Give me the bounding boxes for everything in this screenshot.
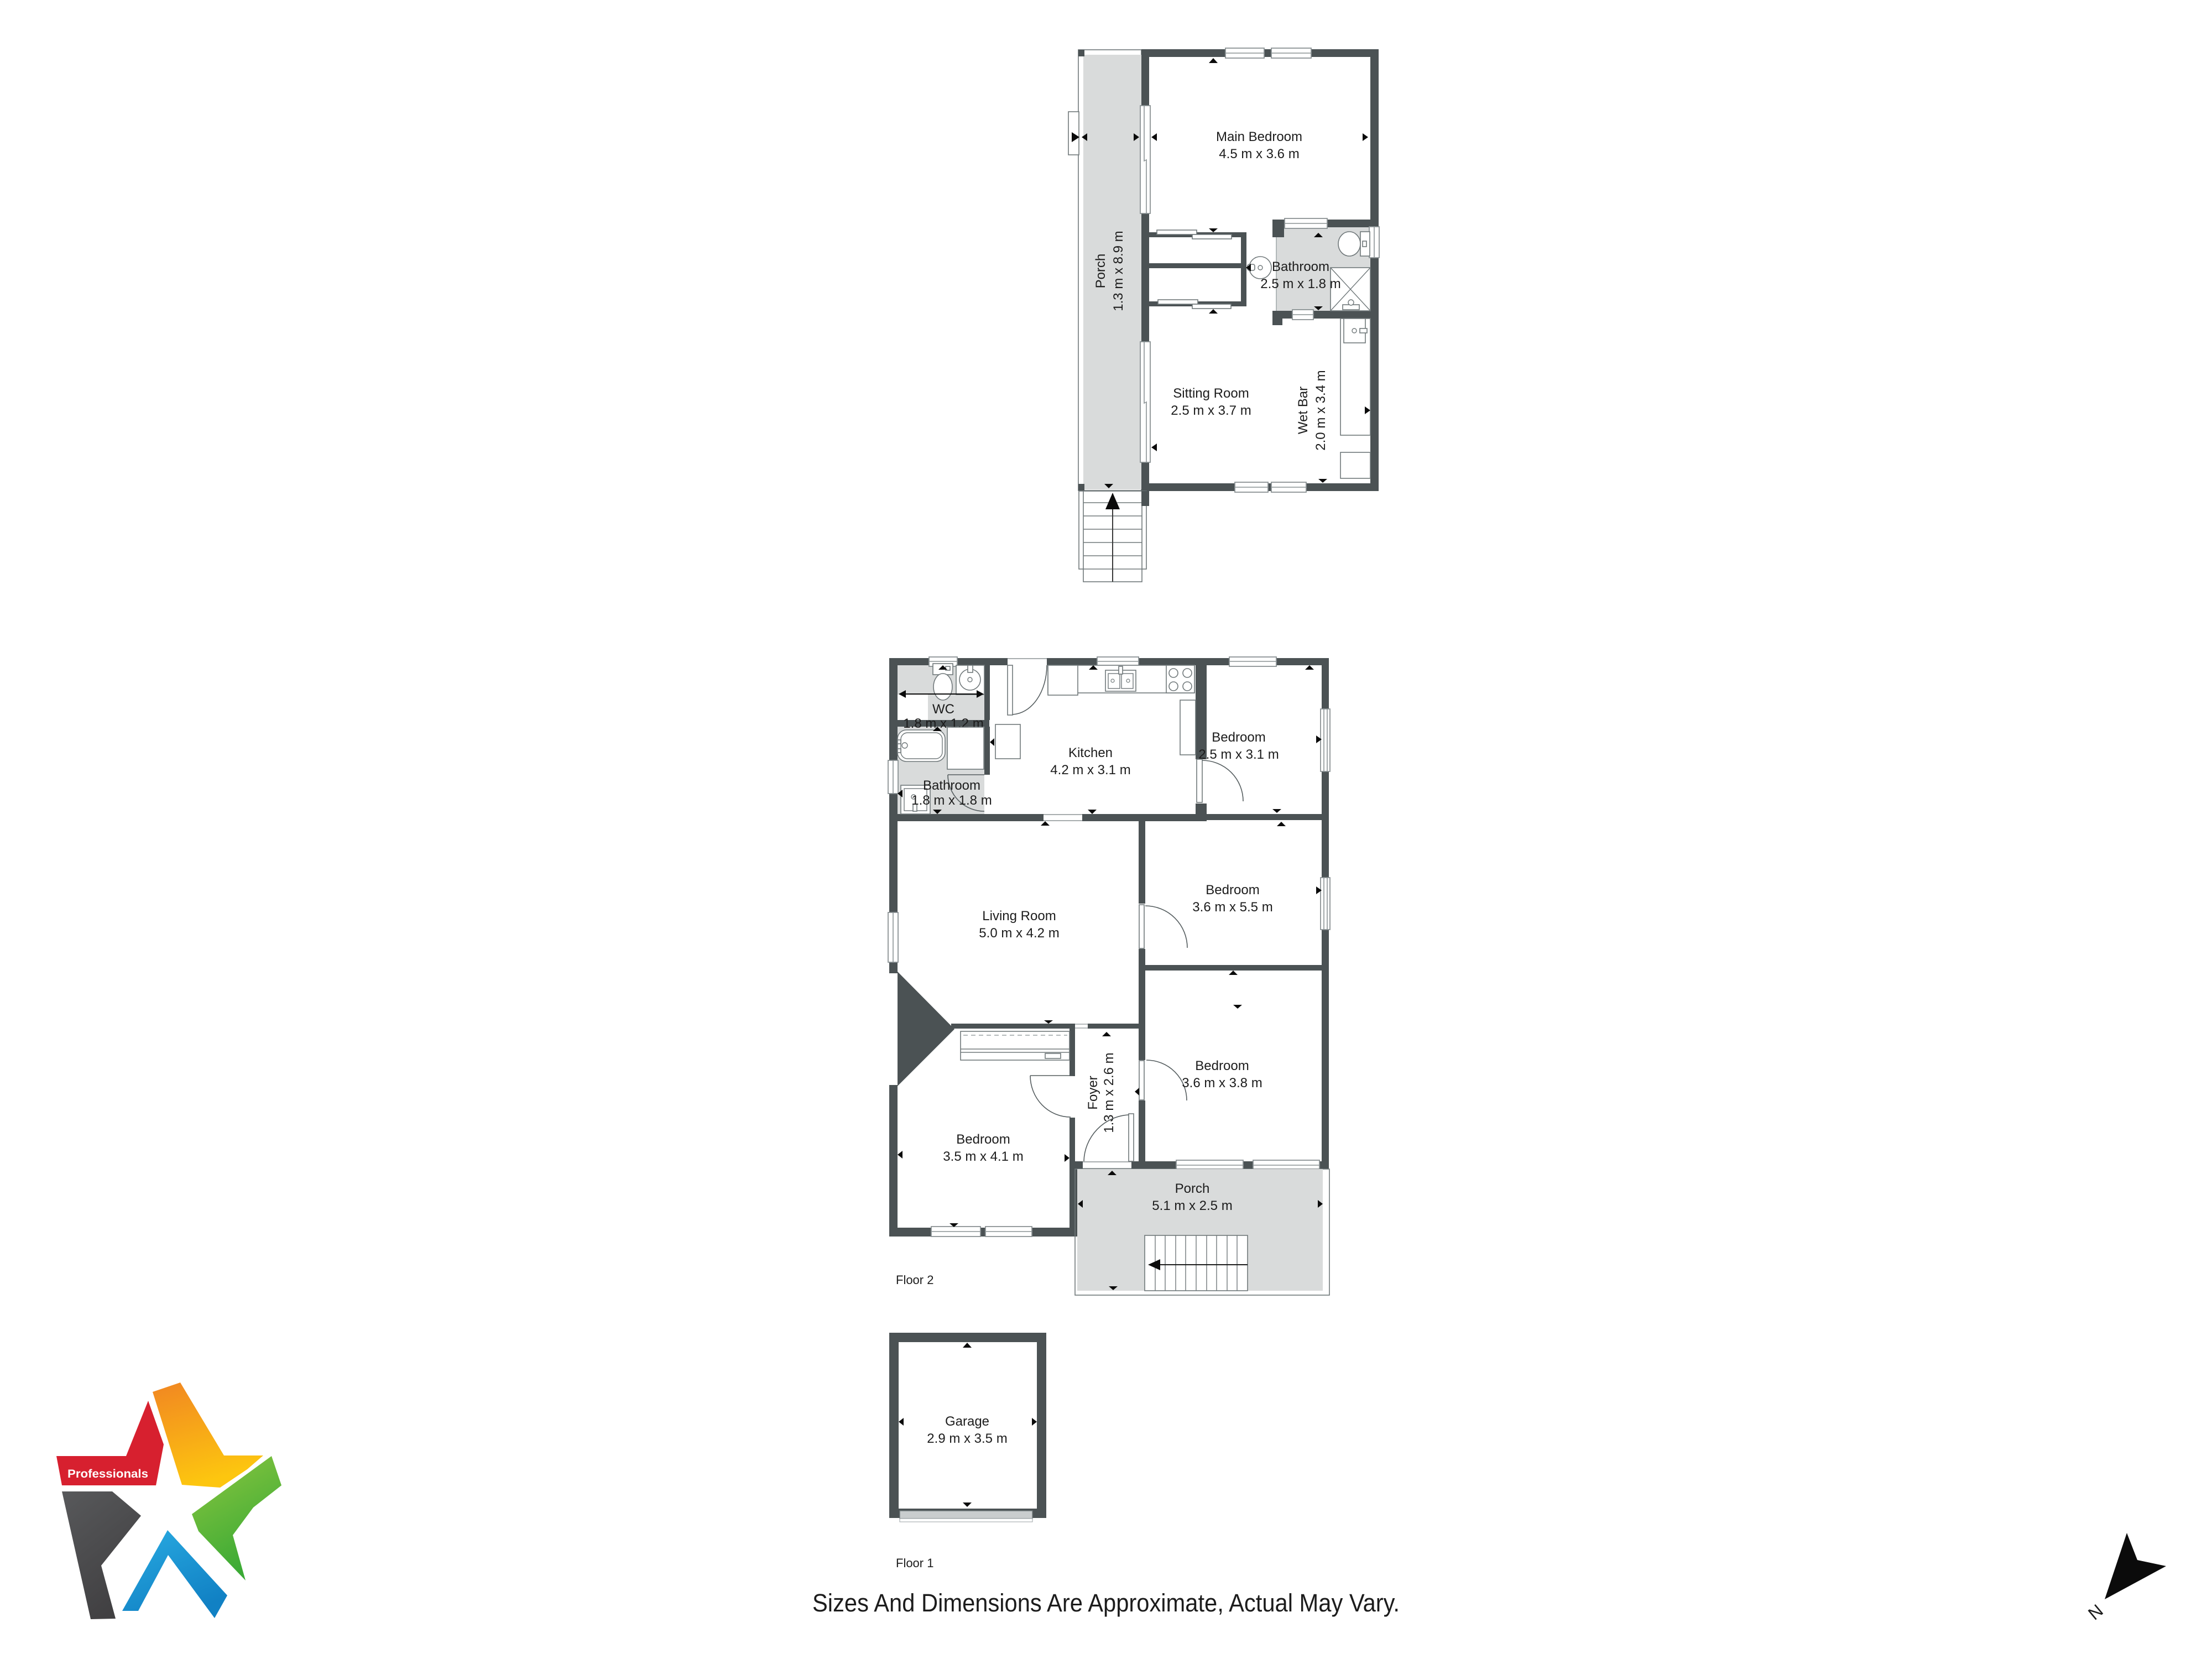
svg-text:3.6 m x 3.8 m: 3.6 m x 3.8 m bbox=[1182, 1076, 1262, 1091]
svg-text:Sizes And Dimensions Are Appro: Sizes And Dimensions Are Approximate, Ac… bbox=[812, 1589, 1400, 1617]
svg-text:4.5 m x 3.6 m: 4.5 m x 3.6 m bbox=[1219, 147, 1299, 161]
svg-text:Living Room: Living Room bbox=[982, 909, 1056, 924]
svg-text:5.0 m x 4.2 m: 5.0 m x 4.2 m bbox=[979, 926, 1059, 941]
svg-text:5.1 m x 2.5 m: 5.1 m x 2.5 m bbox=[1152, 1198, 1232, 1213]
svg-text:3.5 m x 4.1 m: 3.5 m x 4.1 m bbox=[943, 1149, 1023, 1164]
svg-text:3.6 m x 5.5 m: 3.6 m x 5.5 m bbox=[1192, 900, 1272, 915]
svg-text:2.0 m x 3.4 m: 2.0 m x 3.4 m bbox=[1313, 370, 1328, 450]
svg-text:Bathroom: Bathroom bbox=[1272, 259, 1329, 274]
svg-text:2.5 m x 3.1 m: 2.5 m x 3.1 m bbox=[1198, 747, 1279, 762]
svg-text:Wet Bar: Wet Bar bbox=[1296, 387, 1311, 434]
svg-text:2.5 m x 1.8 m: 2.5 m x 1.8 m bbox=[1260, 276, 1340, 291]
svg-text:1.3 m x 8.9 m: 1.3 m x 8.9 m bbox=[1111, 231, 1126, 311]
svg-text:1.3 m x 2.6 m: 1.3 m x 2.6 m bbox=[1102, 1052, 1117, 1133]
svg-text:Porch: Porch bbox=[1093, 254, 1108, 289]
svg-text:Porch: Porch bbox=[1175, 1181, 1210, 1196]
svg-text:WC: WC bbox=[932, 702, 954, 717]
svg-text:4.2 m x 3.1 m: 4.2 m x 3.1 m bbox=[1050, 763, 1130, 778]
svg-text:Bathroom: Bathroom bbox=[923, 778, 980, 793]
svg-text:Floor 1: Floor 1 bbox=[896, 1556, 933, 1570]
svg-text:Bedroom: Bedroom bbox=[956, 1132, 1010, 1147]
svg-text:1.8 m x 1.8 m: 1.8 m x 1.8 m bbox=[911, 793, 992, 808]
svg-text:Garage: Garage bbox=[945, 1414, 989, 1429]
svg-text:Professionals: Professionals bbox=[67, 1468, 148, 1480]
svg-text:Bedroom: Bedroom bbox=[1195, 1058, 1249, 1073]
svg-text:Floor 2: Floor 2 bbox=[896, 1273, 933, 1287]
svg-text:Main Bedroom: Main Bedroom bbox=[1216, 129, 1302, 144]
svg-text:2.5 m x 3.7 m: 2.5 m x 3.7 m bbox=[1171, 403, 1251, 418]
svg-text:Bedroom: Bedroom bbox=[1212, 730, 1265, 745]
svg-text:Foyer: Foyer bbox=[1086, 1076, 1100, 1109]
svg-text:Sitting Room: Sitting Room bbox=[1173, 386, 1249, 401]
svg-text:Kitchen: Kitchen bbox=[1068, 745, 1113, 760]
svg-text:2.9 m x 3.5 m: 2.9 m x 3.5 m bbox=[927, 1431, 1007, 1446]
svg-text:Bedroom: Bedroom bbox=[1206, 883, 1259, 898]
